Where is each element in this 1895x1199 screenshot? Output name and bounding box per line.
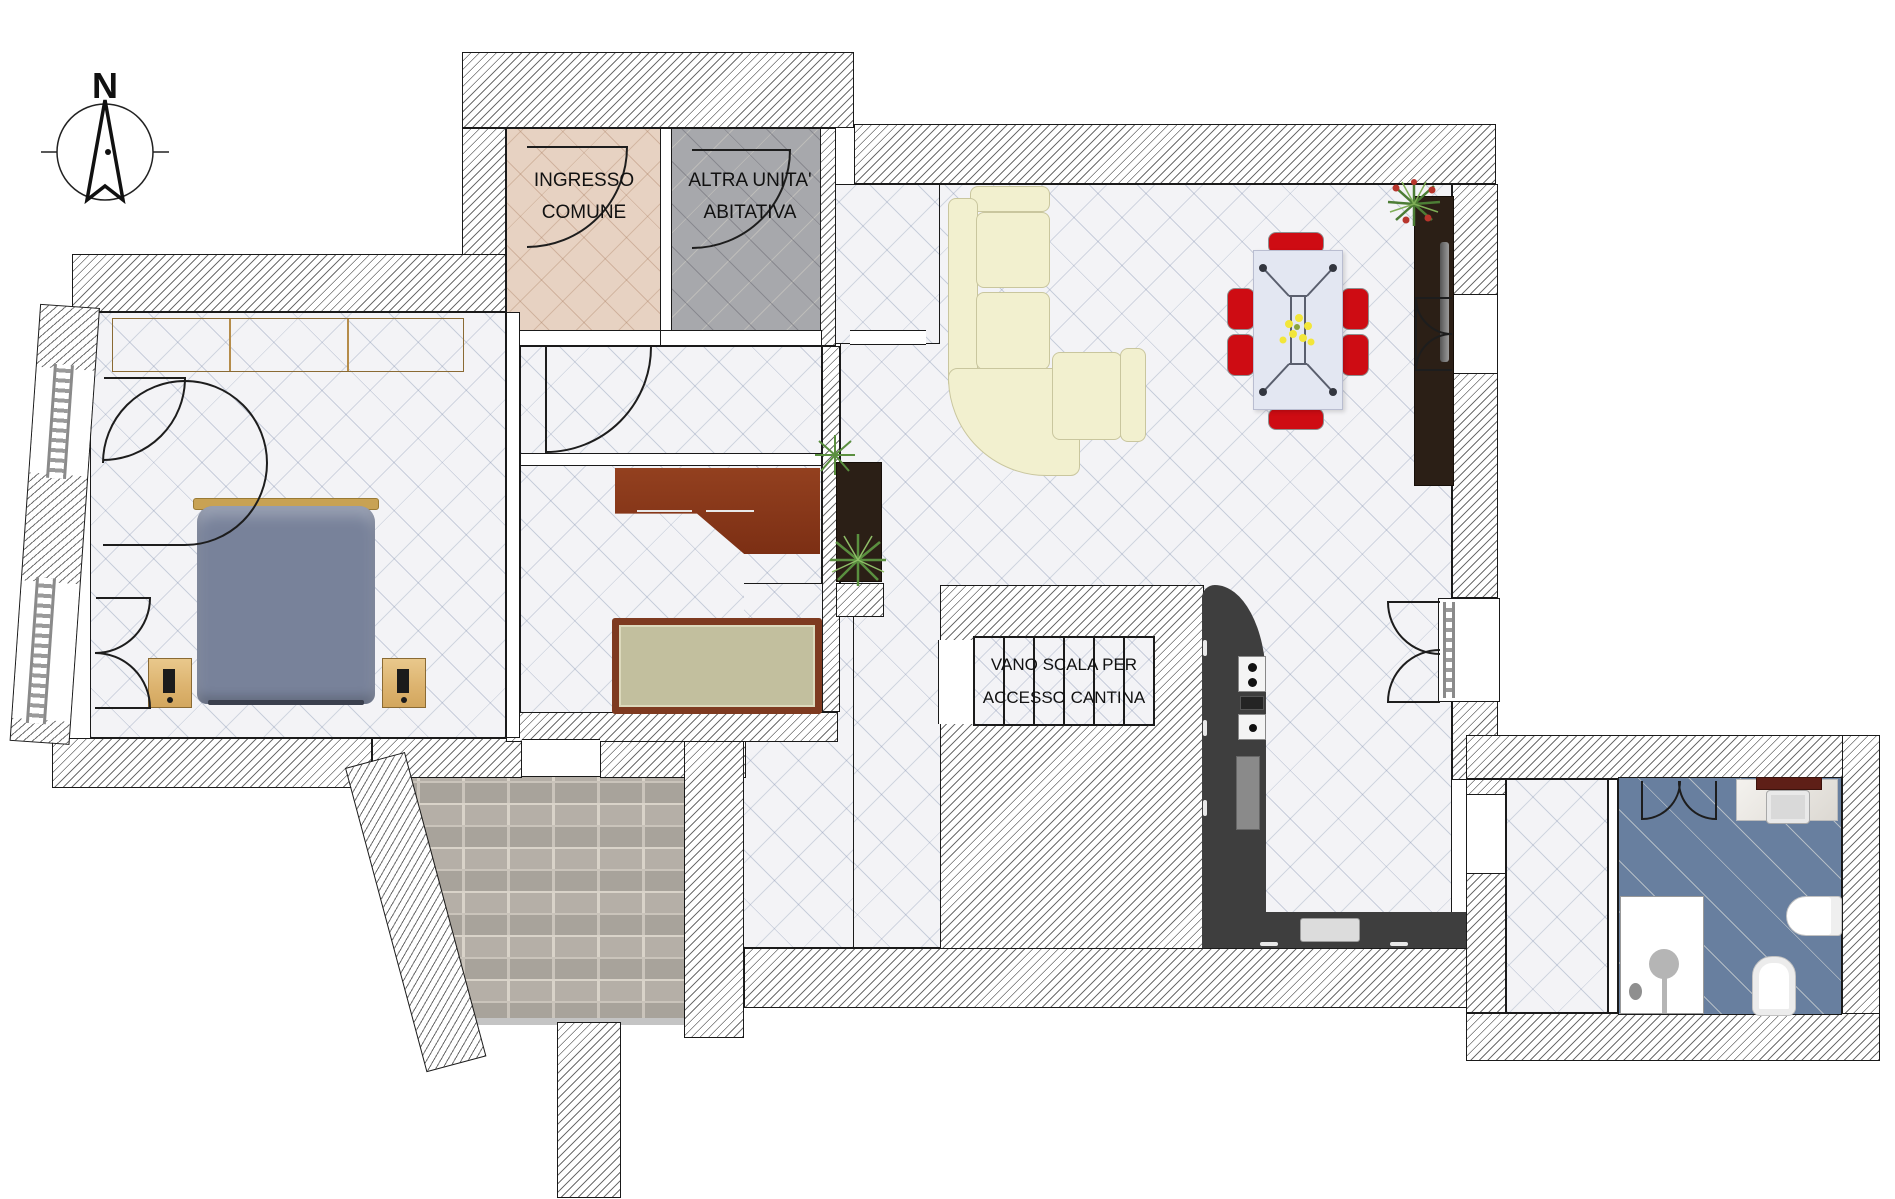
- table-flowers: [1280, 314, 1315, 346]
- casement-bedroom-4: [95, 653, 150, 708]
- casement-kitchen-window-top: [1388, 602, 1440, 654]
- casement-kitchen-window-bottom: [1388, 650, 1440, 702]
- casement-living-window-top: [1416, 298, 1452, 334]
- room-label-ingresso-line1: INGRESSO: [534, 170, 634, 192]
- door-bathroom-right: [1679, 781, 1716, 819]
- plant-living-left: [812, 432, 858, 478]
- plant-top-right: [1384, 176, 1444, 232]
- room-label-ingresso-line2: COMUNE: [542, 202, 626, 224]
- room-label-vano-scala-line1: VANO SCALA PER: [991, 655, 1137, 675]
- room-label-altra-line1: ALTRA UNITA': [688, 170, 811, 192]
- casement-bedroom-2: [103, 381, 267, 545]
- room-label-altra-line2: ABITATIVA: [704, 202, 797, 224]
- room-label-vano-scala-line2: ACCESSO CANTINA: [983, 688, 1145, 708]
- dining-table-frame: [1253, 250, 1343, 410]
- plant-bookcase: [826, 530, 890, 592]
- floor-plan-canvas: N: [0, 0, 1895, 1199]
- door-ingresso: [527, 147, 627, 247]
- door-hall: [546, 347, 651, 452]
- door-swing-arcs: [0, 0, 1895, 1199]
- casement-living-window-bottom: [1416, 334, 1452, 370]
- door-altra: [692, 150, 790, 248]
- door-bathroom-left: [1642, 781, 1680, 819]
- casement-bedroom-3: [95, 598, 150, 653]
